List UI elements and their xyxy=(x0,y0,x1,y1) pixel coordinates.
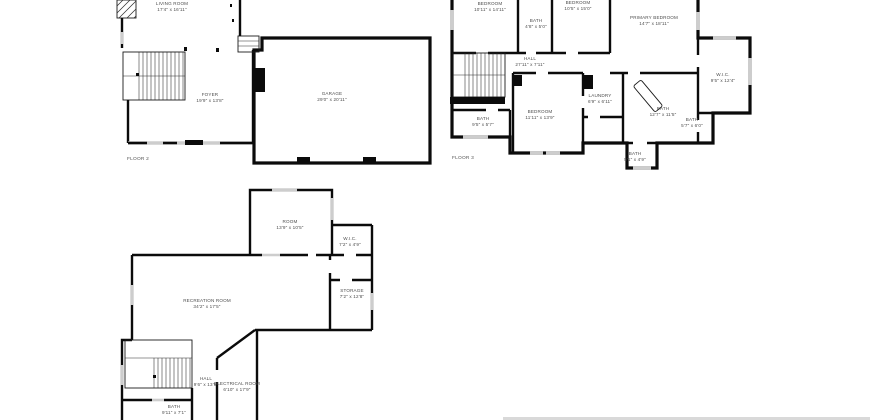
column-mark xyxy=(216,48,219,52)
room-label-wic-f1: W.I.C. 7'2" x 4'9" xyxy=(339,236,361,248)
room-label-primary-bedroom: PRIMARY BEDROOM 14'7" x 18'11" xyxy=(630,15,678,27)
room-label-foyer: FOYER 19'9" x 13'8" xyxy=(196,92,223,104)
room-label-bath-bottom: BATH 5'1" x 4'9" xyxy=(624,151,646,163)
room-label-bath-small-right: BATH 5'7" x 6'0" xyxy=(681,117,703,129)
door-jamb xyxy=(583,75,593,89)
room-label-bath-top: BATH 4'8" x 5'0" xyxy=(525,18,547,30)
staircase xyxy=(123,52,185,100)
column-mark xyxy=(232,19,234,22)
door-post xyxy=(363,157,376,162)
room-label-wic-f3: W.I.C. 9'5" x 12'4" xyxy=(711,72,735,84)
door-jamb xyxy=(254,68,265,92)
staircase xyxy=(125,340,192,388)
floor2-plan xyxy=(108,0,438,170)
floor2-label: FLOOR 2 xyxy=(127,157,149,163)
floor-plan-page: LIVING ROOM 17'4" x 16'11" FOYER 19'9" x… xyxy=(0,0,870,420)
room-label-recreation-room: RECREATION ROOM 34'2" x 17'5" xyxy=(183,298,231,310)
floor3-plan xyxy=(448,0,770,180)
room-label-bedroom3: BEDROOM 11'11" x 13'9" xyxy=(525,109,554,121)
room-label-bedroom1: BEDROOM 10'11" x 14'11" xyxy=(474,1,506,13)
room-label-garage: GARAGE 29'0" x 20'11" xyxy=(317,91,347,103)
door-jamb xyxy=(513,75,522,86)
floor3-label: FLOOR 3 xyxy=(452,156,474,162)
column-mark xyxy=(184,47,187,51)
room-label-bath-left: BATH 9'5" x 5'7" xyxy=(472,116,494,128)
room-label-room: ROOM 13'9" x 10'5" xyxy=(276,219,303,231)
door-post xyxy=(297,157,310,162)
hatched-area xyxy=(117,0,136,18)
door-jamb xyxy=(185,140,203,145)
room-label-living-room: LIVING ROOM 17'4" x 16'11" xyxy=(156,1,188,13)
room-label-storage: STORAGE 7'2" x 12'8" xyxy=(340,288,364,300)
exterior-walls xyxy=(452,0,750,168)
room-label-laundry: LAUNDRY 6'9" x 6'11" xyxy=(588,93,612,105)
room-label-hall-f3: HALL 27'11" x 7'11" xyxy=(515,56,544,68)
staircase xyxy=(450,53,505,104)
room-label-bath-big: BATH 12'7" x 11'5" xyxy=(650,106,677,118)
room-label-bath-f1: BATH 9'11" x 7'1" xyxy=(162,404,186,416)
room-label-electrical-room: ELECTRICAL ROOM 6'10" x 17'9" xyxy=(214,381,260,393)
column-mark xyxy=(230,4,232,7)
room-label-bedroom2: BEDROOM 10'5" x 15'0" xyxy=(564,0,591,12)
wall xyxy=(217,330,330,358)
